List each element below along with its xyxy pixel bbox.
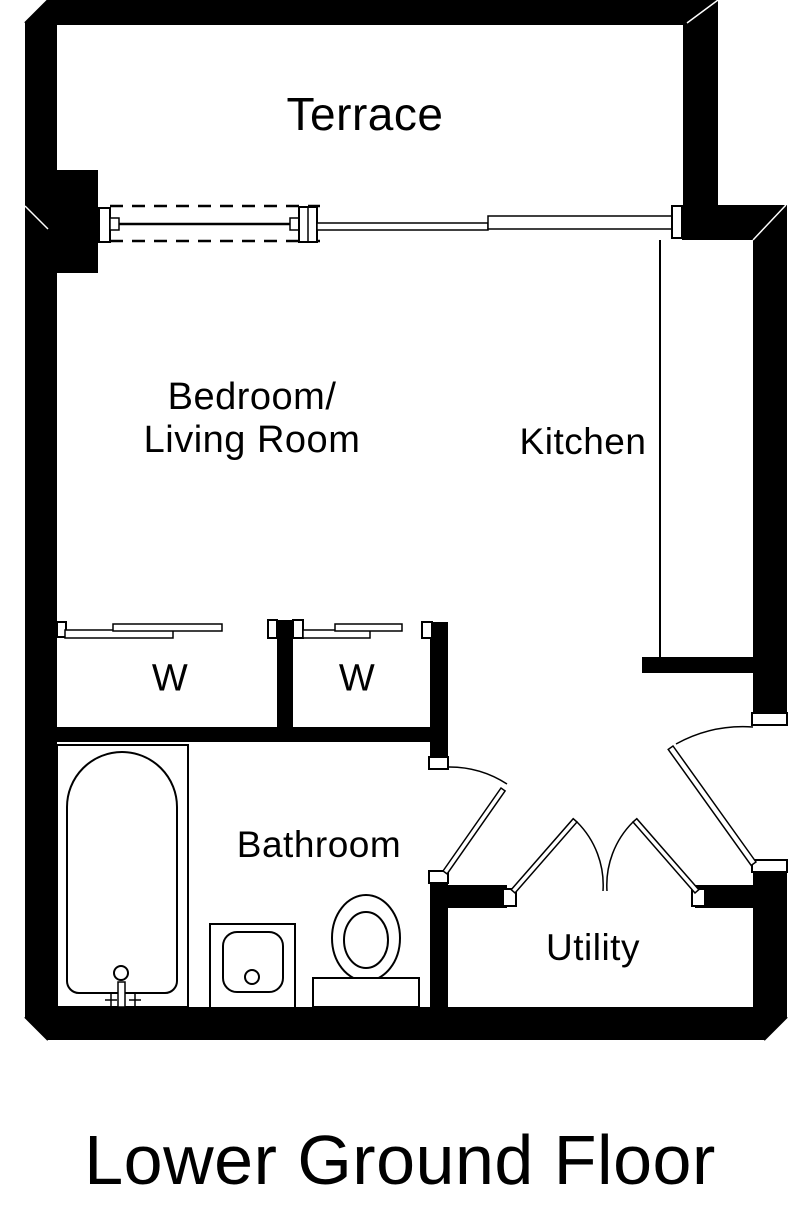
window-pane-left bbox=[317, 223, 488, 230]
bathtub-basin bbox=[67, 752, 177, 993]
door-swing-arc bbox=[448, 767, 507, 784]
door-leaf-left bbox=[511, 819, 577, 893]
wardrobe-post-left bbox=[268, 620, 277, 638]
window-pane-right bbox=[488, 216, 672, 229]
wall-left bbox=[25, 0, 57, 1040]
bedroom-label-line2: Living Room bbox=[144, 419, 361, 462]
wardrobe-post-right bbox=[293, 620, 303, 638]
door-leaf bbox=[668, 746, 756, 865]
wall-right-upper bbox=[753, 205, 787, 713]
utility-double-doors bbox=[503, 819, 705, 906]
wardrobe-rail-upper bbox=[113, 624, 222, 631]
sink bbox=[210, 924, 295, 1008]
wall-bathroom-right-lower bbox=[430, 883, 448, 1007]
bathtub bbox=[57, 745, 188, 1007]
wall-top bbox=[25, 0, 718, 25]
door-leaf-right bbox=[633, 819, 699, 893]
wall-kitchen-bottom bbox=[642, 657, 753, 673]
door-swing-arc bbox=[676, 727, 753, 744]
wall-wardrobes-bottom bbox=[25, 727, 448, 742]
door-post-bottom bbox=[752, 860, 787, 872]
sliding-door-jamb-left bbox=[99, 208, 110, 242]
door-post-top bbox=[752, 713, 787, 725]
wardrobe-jamb bbox=[422, 622, 432, 638]
floor-plan-page: Terrace Bedroom/ Living Room Kitchen W W… bbox=[0, 0, 800, 1206]
wall-utility-top-left bbox=[448, 885, 507, 908]
wardrobe-right-doors bbox=[268, 620, 447, 638]
door-post-top bbox=[429, 757, 448, 769]
bedroom-label-line1: Bedroom/ bbox=[144, 376, 361, 419]
wardrobe-right-label: W bbox=[339, 658, 375, 701]
terrace-sliding-door bbox=[99, 206, 320, 242]
wardrobe-left-doors bbox=[57, 622, 222, 638]
bathroom-label: Bathroom bbox=[237, 824, 401, 866]
wall-bottom bbox=[25, 1007, 787, 1040]
terrace-label: Terrace bbox=[287, 87, 444, 141]
toilet-seat bbox=[344, 912, 388, 968]
wardrobe-rail-upper bbox=[335, 624, 402, 631]
door-swing-arc-left bbox=[577, 822, 603, 891]
wall-left-pillar bbox=[50, 170, 98, 273]
entry-door bbox=[668, 713, 787, 872]
door-swing-arc-right bbox=[607, 822, 633, 891]
toilet-cistern bbox=[313, 978, 419, 1007]
bath-drain bbox=[114, 966, 128, 980]
sliding-door-tab-right bbox=[290, 218, 299, 230]
floor-title: Lower Ground Floor bbox=[84, 1120, 716, 1200]
bath-tap-stem bbox=[118, 982, 125, 1007]
sliding-door-tab-left bbox=[110, 218, 119, 230]
wall-bathroom-right-upper bbox=[430, 622, 448, 757]
utility-label: Utility bbox=[546, 927, 640, 969]
window-jamb-right bbox=[672, 206, 682, 238]
bedroom-living-room-label: Bedroom/ Living Room bbox=[144, 376, 361, 462]
floor-plan-drawing bbox=[0, 0, 800, 1206]
toilet bbox=[313, 895, 419, 1007]
wardrobe-left-label: W bbox=[152, 658, 188, 701]
door-leaf bbox=[443, 788, 505, 874]
bathroom-door bbox=[429, 757, 507, 883]
terrace-window bbox=[317, 206, 682, 238]
sink-drain bbox=[245, 970, 259, 984]
wall-wardrobe-divider bbox=[277, 620, 293, 742]
kitchen-label: Kitchen bbox=[520, 421, 647, 463]
wall-terrace-right bbox=[683, 25, 718, 206]
